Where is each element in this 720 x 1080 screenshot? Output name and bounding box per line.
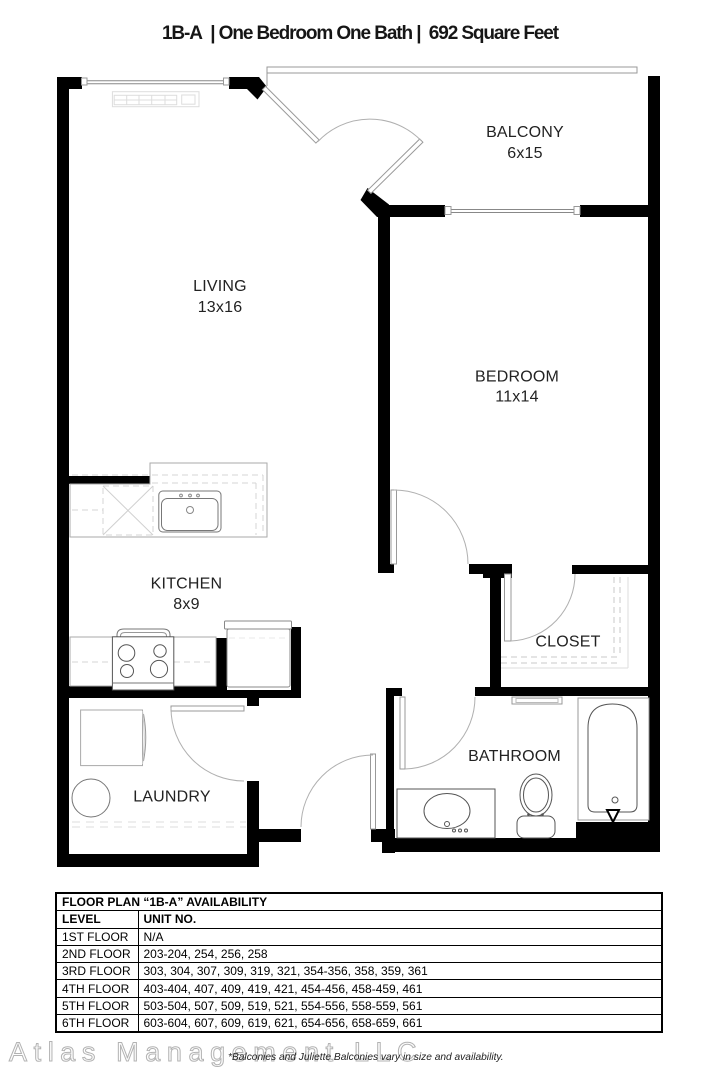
svg-text:BATHROOM: BATHROOM	[468, 748, 561, 765]
svg-text:13x16: 13x16	[198, 299, 243, 316]
svg-text:BALCONY: BALCONY	[486, 124, 564, 141]
svg-text:KITCHEN: KITCHEN	[151, 576, 223, 593]
svg-text:6x15: 6x15	[507, 145, 543, 162]
svg-text:11x14: 11x14	[495, 389, 538, 406]
svg-text:CLOSET: CLOSET	[535, 634, 600, 651]
svg-text:8x9: 8x9	[173, 596, 199, 613]
svg-text:LAUNDRY: LAUNDRY	[133, 789, 211, 806]
svg-text:LIVING: LIVING	[193, 278, 247, 295]
svg-text:BEDROOM: BEDROOM	[475, 369, 559, 386]
